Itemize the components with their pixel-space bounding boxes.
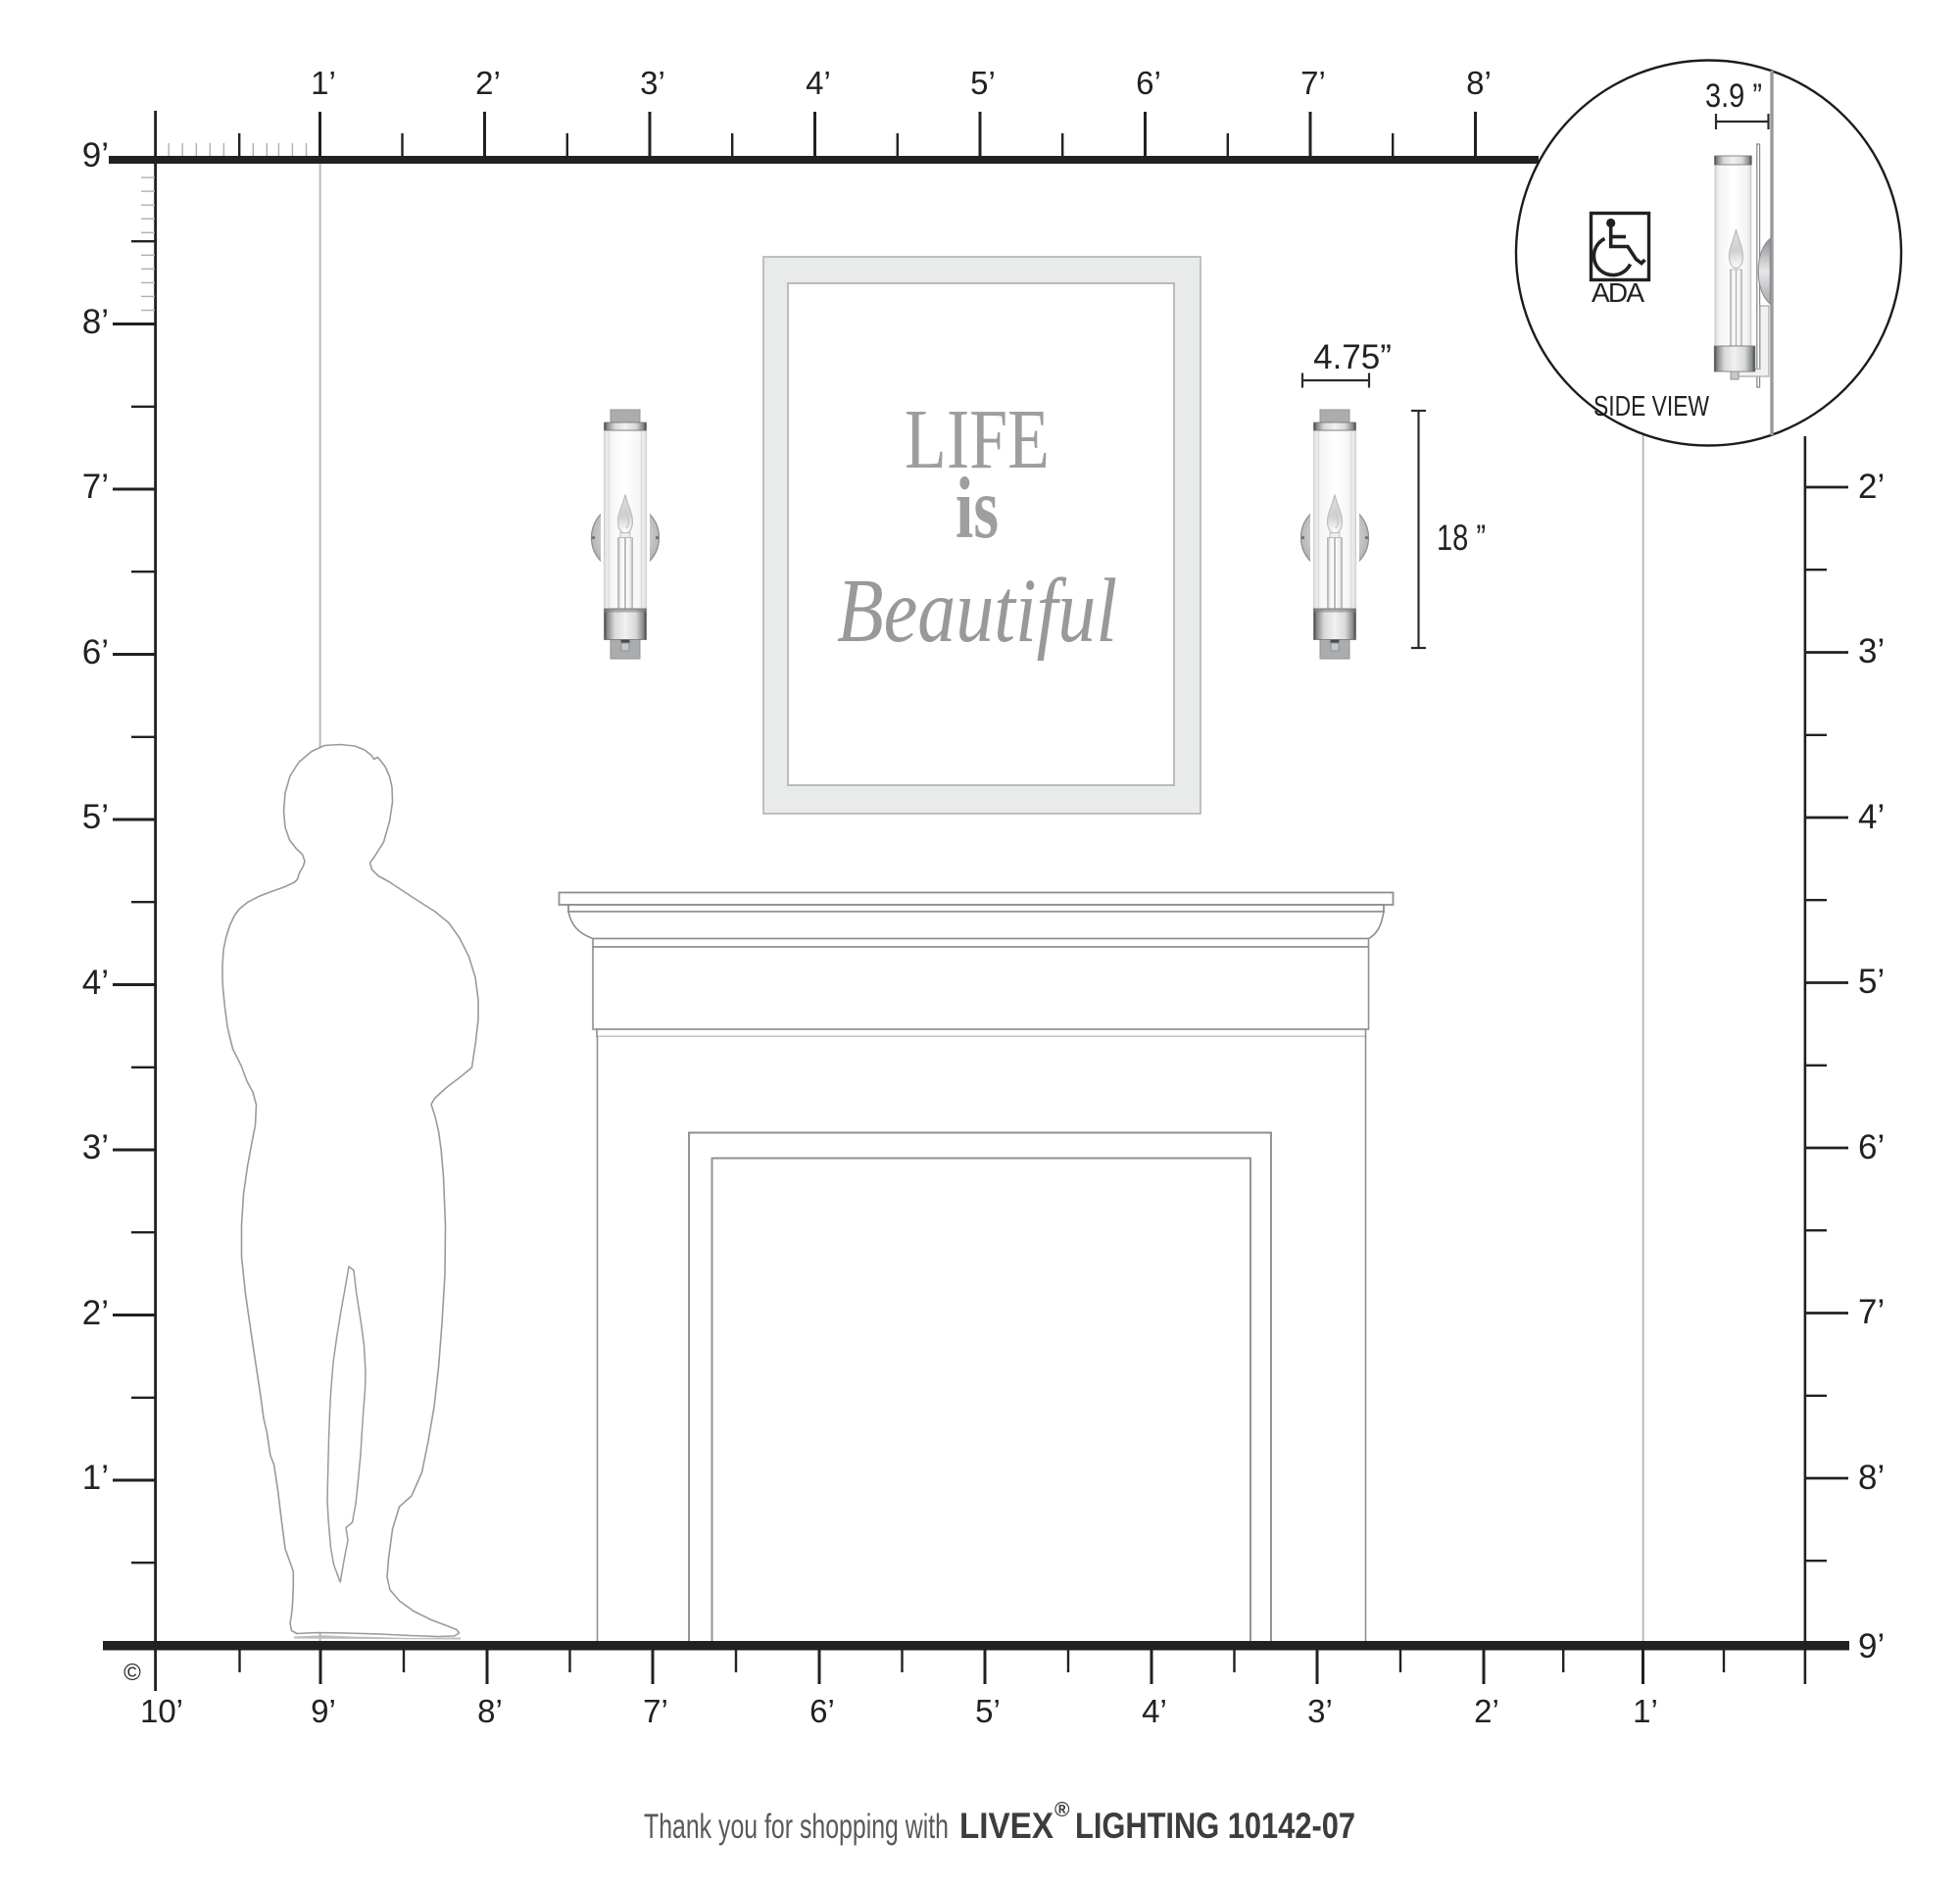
svg-text:5’: 5’ bbox=[1858, 963, 1885, 1001]
svg-text:LIGHTING 10142-07: LIGHTING 10142-07 bbox=[1075, 1806, 1355, 1846]
svg-text:8’: 8’ bbox=[1466, 65, 1492, 101]
svg-text:9’: 9’ bbox=[82, 136, 109, 174]
svg-text:5’: 5’ bbox=[82, 798, 109, 836]
svg-text:4’: 4’ bbox=[1142, 1693, 1167, 1729]
svg-text:7’: 7’ bbox=[1300, 65, 1326, 101]
svg-text:2’: 2’ bbox=[1858, 468, 1885, 506]
svg-text:2’: 2’ bbox=[1474, 1693, 1499, 1729]
svg-text:3’: 3’ bbox=[82, 1128, 109, 1167]
svg-text:2’: 2’ bbox=[475, 65, 501, 101]
svg-text:2’: 2’ bbox=[82, 1294, 109, 1332]
svg-text:6’: 6’ bbox=[1858, 1128, 1885, 1167]
svg-text:3’: 3’ bbox=[1307, 1693, 1333, 1729]
svg-text:4’: 4’ bbox=[1858, 798, 1885, 836]
svg-text:4.75”: 4.75” bbox=[1313, 338, 1392, 376]
svg-text:18 ”: 18 ” bbox=[1437, 518, 1486, 558]
svg-text:6’: 6’ bbox=[82, 633, 109, 671]
svg-text:LIVEX: LIVEX bbox=[959, 1806, 1053, 1846]
svg-text:8’: 8’ bbox=[82, 303, 109, 341]
svg-text:9’: 9’ bbox=[1858, 1627, 1885, 1665]
svg-text:3.9 ”: 3.9 ” bbox=[1705, 77, 1762, 115]
svg-text:4’: 4’ bbox=[82, 964, 109, 1002]
svg-text:ADA: ADA bbox=[1592, 277, 1644, 308]
svg-text:1’: 1’ bbox=[82, 1459, 109, 1497]
svg-text:10’: 10’ bbox=[140, 1693, 183, 1729]
svg-text:3’: 3’ bbox=[1858, 632, 1885, 670]
svg-text:7’: 7’ bbox=[82, 468, 109, 506]
svg-text:©: © bbox=[123, 1660, 141, 1686]
svg-text:8’: 8’ bbox=[1858, 1459, 1885, 1497]
svg-text:®: ® bbox=[1054, 1799, 1070, 1821]
svg-text:SIDE VIEW: SIDE VIEW bbox=[1593, 391, 1709, 422]
svg-text:1’: 1’ bbox=[1633, 1693, 1658, 1729]
svg-text:is: is bbox=[955, 461, 999, 557]
svg-text:6’: 6’ bbox=[1136, 65, 1161, 101]
svg-text:1’: 1’ bbox=[311, 65, 336, 101]
svg-text:6’: 6’ bbox=[809, 1693, 835, 1729]
svg-text:Thank you for shopping with: Thank you for shopping with bbox=[644, 1807, 949, 1846]
svg-text:8’: 8’ bbox=[477, 1693, 503, 1729]
svg-text:7’: 7’ bbox=[643, 1693, 668, 1729]
svg-text:4’: 4’ bbox=[806, 65, 831, 101]
svg-text:Beautiful: Beautiful bbox=[837, 561, 1117, 662]
svg-text:3’: 3’ bbox=[640, 65, 665, 101]
svg-text:9’: 9’ bbox=[311, 1693, 336, 1729]
svg-text:7’: 7’ bbox=[1858, 1293, 1885, 1331]
svg-text:5’: 5’ bbox=[975, 1693, 1001, 1729]
svg-text:5’: 5’ bbox=[970, 65, 996, 101]
